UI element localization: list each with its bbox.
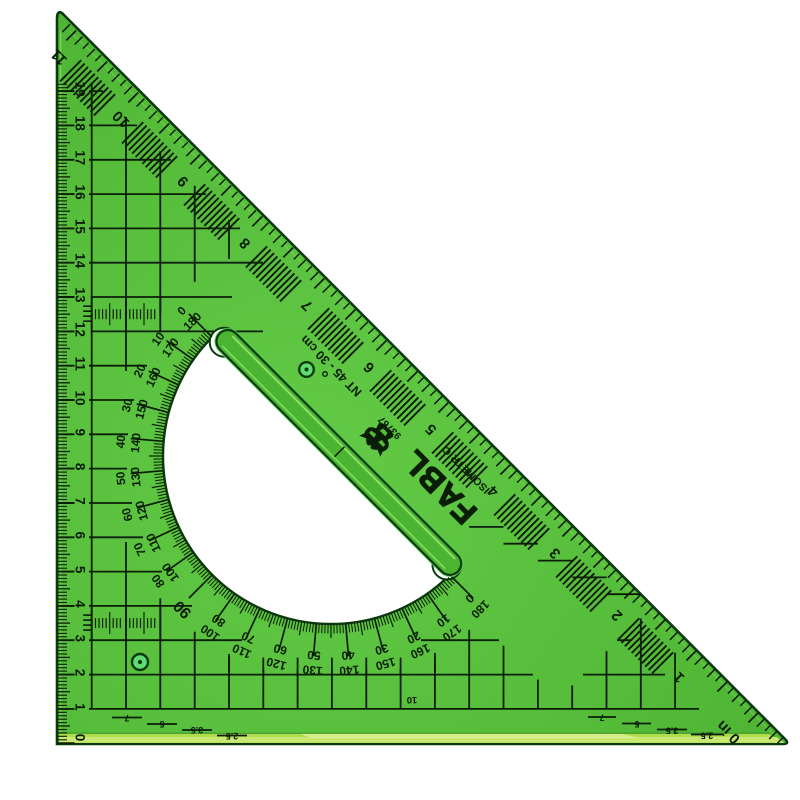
svg-text:140: 140 bbox=[128, 432, 144, 453]
svg-text:15: 15 bbox=[73, 219, 88, 235]
svg-text:2.5: 2.5 bbox=[701, 731, 714, 741]
svg-text:18: 18 bbox=[73, 116, 88, 132]
svg-text:140: 140 bbox=[338, 662, 359, 678]
svg-text:4: 4 bbox=[73, 600, 88, 608]
svg-text:1: 1 bbox=[73, 703, 88, 711]
svg-text:0: 0 bbox=[73, 734, 88, 742]
svg-text:3: 3 bbox=[73, 634, 88, 642]
svg-text:11: 11 bbox=[73, 357, 88, 372]
svg-text:9: 9 bbox=[73, 429, 88, 437]
svg-text:6: 6 bbox=[73, 532, 88, 540]
svg-text:12: 12 bbox=[73, 322, 88, 337]
svg-text:3.5: 3.5 bbox=[666, 726, 679, 736]
svg-text:13: 13 bbox=[73, 287, 88, 303]
svg-text:16: 16 bbox=[73, 185, 88, 201]
svg-text:130: 130 bbox=[302, 662, 323, 678]
svg-text:14: 14 bbox=[73, 253, 88, 269]
svg-text:8: 8 bbox=[73, 463, 88, 471]
svg-text:17: 17 bbox=[73, 150, 88, 165]
svg-text:40: 40 bbox=[340, 648, 355, 663]
svg-text:7: 7 bbox=[73, 497, 88, 505]
svg-text:10: 10 bbox=[73, 390, 88, 405]
svg-text:50: 50 bbox=[113, 471, 128, 486]
svg-text:2: 2 bbox=[73, 669, 88, 677]
svg-text:40: 40 bbox=[113, 434, 128, 449]
svg-text:5: 5 bbox=[73, 566, 88, 574]
svg-text:50: 50 bbox=[306, 648, 321, 663]
svg-text:10: 10 bbox=[407, 694, 418, 705]
svg-text:130: 130 bbox=[128, 466, 144, 487]
